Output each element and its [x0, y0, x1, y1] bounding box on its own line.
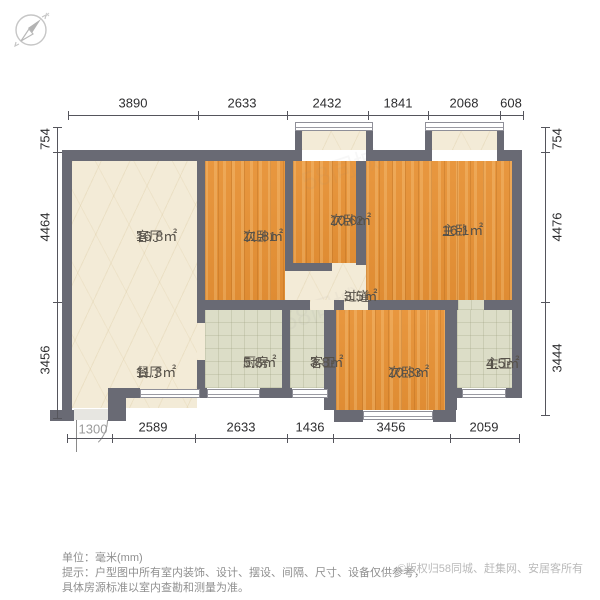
dim-right-2: 4476 [550, 213, 565, 242]
dim-tick [333, 434, 334, 443]
dim-tick [287, 111, 288, 120]
dim-right-1: 754 [550, 128, 565, 150]
dim-bottom-4: 1436 [296, 420, 325, 435]
dim-right-3: 3444 [550, 344, 565, 373]
dim-top-1: 3890 [119, 96, 148, 111]
dim-tick [112, 434, 113, 443]
dim-tick [53, 418, 62, 419]
dim-tick [450, 434, 451, 443]
dim-tick [541, 302, 550, 303]
room-living-dining-floor [72, 161, 197, 408]
dim-top-2: 2633 [228, 96, 257, 111]
wall [506, 388, 512, 398]
wall [334, 300, 344, 310]
wall [260, 388, 292, 398]
wall [433, 410, 456, 422]
room-bedroom3-floor [336, 310, 445, 410]
wall [445, 310, 457, 410]
dim-line-left [57, 127, 58, 418]
wall [126, 388, 140, 398]
entry-door-opening [74, 409, 108, 420]
dim-top-4: 1841 [384, 96, 413, 111]
dim-top-5: 2068 [450, 96, 479, 111]
dim-line-right [545, 127, 546, 415]
dim-tick [195, 434, 196, 443]
wall [484, 300, 512, 310]
dim-left-2: 4464 [38, 213, 53, 242]
master-bath-door-opening [458, 300, 484, 310]
window [425, 122, 504, 131]
unit-note: 单位：毫米(mm) [62, 549, 143, 565]
room-master-bath-floor [457, 310, 512, 388]
compass-icon [8, 7, 52, 51]
dim-tick [53, 152, 62, 153]
wall [285, 263, 332, 271]
window [207, 389, 260, 398]
wall [108, 388, 126, 421]
wall [197, 300, 310, 310]
dim-left-1: 754 [38, 128, 53, 150]
window [140, 389, 200, 398]
wall [197, 161, 205, 323]
disclaimer-line1: 提示：户型图中所有室内装饰、设计、摆设、间隔、尺寸、设备仅供参考， [62, 564, 425, 580]
window [295, 122, 373, 131]
dim-tick [519, 434, 520, 443]
dim-tick [68, 111, 69, 120]
dim-tick [428, 111, 429, 120]
dim-bottom-6: 2059 [470, 420, 499, 435]
dim-bottom-5: 3456 [377, 420, 406, 435]
dim-tick [53, 127, 62, 128]
dim-bottom-2: 2589 [139, 420, 168, 435]
dim-tick [198, 111, 199, 120]
wall [366, 131, 373, 151]
wall [366, 150, 432, 161]
dim-tick [53, 302, 62, 303]
wall [282, 310, 290, 388]
dim-top-6: 608 [500, 96, 522, 111]
copyright-text: ©版权归58同城、赶集网、安居客所有 [398, 560, 583, 576]
wall [425, 131, 432, 151]
room-master-bedroom-floor [366, 161, 512, 300]
wall [497, 131, 504, 151]
wall [368, 300, 458, 310]
room-kitchen-floor [205, 310, 282, 388]
dim-bottom-3: 2633 [227, 420, 256, 435]
window [292, 389, 328, 398]
dim-tick [541, 415, 550, 416]
wall [62, 150, 302, 161]
disclaimer-line2: 具体房源标准以室内查勘和测量为准。 [62, 579, 249, 595]
dim-tick [500, 111, 501, 120]
dim-line-top [68, 115, 523, 116]
bay-window-area [432, 131, 497, 150]
dim-top-3: 2432 [313, 96, 342, 111]
dim-tick [523, 111, 524, 120]
window [462, 389, 506, 398]
dim-bottom-1: 1300 [79, 422, 108, 437]
guest-bath-door-opening [310, 300, 334, 310]
dim-tick [541, 152, 550, 153]
dim-tick [368, 111, 369, 120]
dim-tick [67, 434, 68, 443]
wall [50, 410, 74, 421]
kitchen-door-opening [197, 323, 205, 360]
wall [285, 161, 293, 265]
wall [62, 150, 72, 420]
dim-left-3: 3456 [38, 346, 53, 375]
dim-tick [287, 434, 288, 443]
dim-line-bottom [67, 438, 519, 439]
wall [334, 410, 363, 422]
wall [295, 131, 302, 151]
floorplan-canvas: 58同城 58同城 [0, 0, 600, 600]
